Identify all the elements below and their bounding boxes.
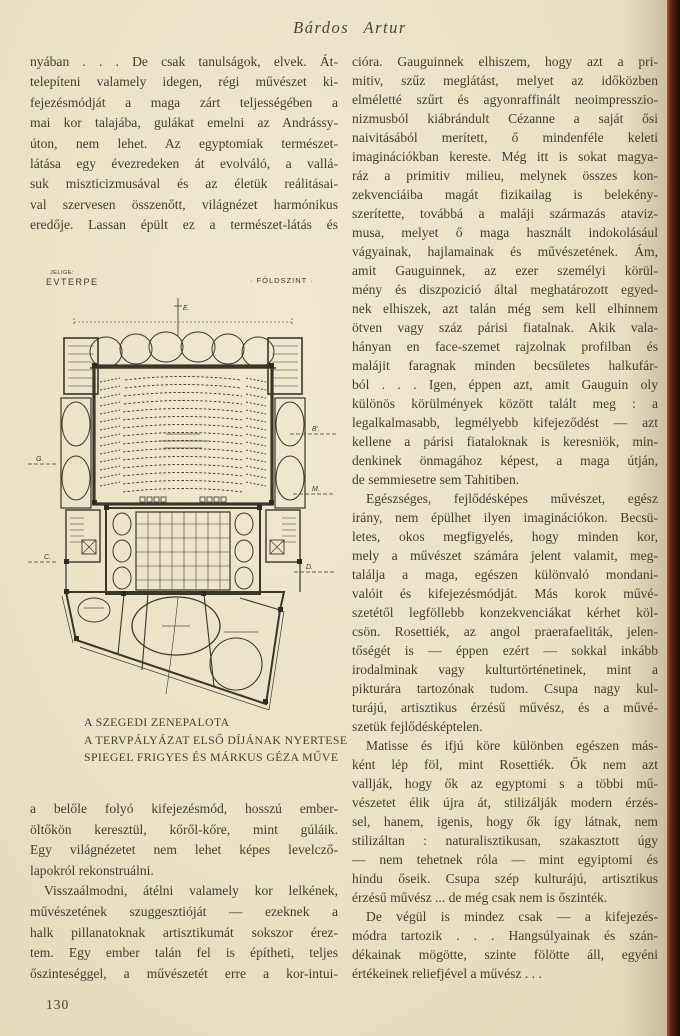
section-mark-c: C. [44,554,51,561]
text-line: ként lép föl, mint Rosettiék. Ők nem azt [352,755,658,774]
text-line: látása egy évezredeken át evolváló, a va… [30,154,338,174]
text-line: pikturára tartozónak tudom. Csupa nagy k… [352,679,658,698]
text-line: lapokról rekonstruálni. [30,861,338,882]
text-line: vészetet élik újra át, stilizálják moder… [352,793,658,812]
text-line: letes, okos megfigyelés, hogy minden kor… [352,527,658,546]
text-line: Matisse és ifjú köre különben egészen má… [352,736,658,755]
floor-label: · FÖLDSZINT · [250,276,314,285]
text-line: nizmusból kiábrándult Cézanne a saját ős… [352,109,658,128]
text-line: mitiv, szűz meglátást, melyet az időközb… [352,71,658,90]
text-line: ból . . . Igen, éppen azt, amit Gauguin … [352,375,658,394]
text-line: mely a művészet számára jelent valamit, … [352,546,658,565]
text-line: mai kor talajába, gulákat emelni az Andr… [30,113,338,133]
text-line: sel, hanem, igenis, hogy ők így látnak, … [352,812,658,831]
text-line: ráz a primitiv milieu, melynek összes ko… [352,166,658,185]
jelige-label: JELIGE: [50,270,74,276]
text-line: irodalminak vagy kulturtörténetinek, min… [352,660,658,679]
text-line: hindu őseik. Csupa szép kulturájú, artis… [352,869,658,888]
text-line: De végül is mindez csak — a kifejezés- [352,907,658,926]
text-line: módra tartozik . . . Hangsúlyainak és sz… [352,926,658,945]
section-mark-g: G. [36,456,43,463]
floor-plan-svg: JELIGE: EVTERPE · FÖLDSZINT · [28,262,338,712]
text-line: vallják, hogy ők az egyptomi s a többi m… [352,774,658,793]
text-line: csön. Rosettiék, az angol praerafaeliták… [352,622,658,641]
text-line: hányan en face-szemet rajzolnak profilba… [352,337,658,356]
text-line: különös körülmények között talált meg : … [352,394,658,413]
figure-caption: A SZEGEDI ZENEPALOTA A TERVPÁLYÁZAT ELSŐ… [84,714,354,767]
section-mark-m: M. [312,486,320,493]
text-line: eredője. Lassan épült ez a természet-lát… [30,215,338,235]
text-line: tőségét is — éppen ezért — sokkal inkább [352,641,658,660]
text-line: musa, melyet ő maga használt indokolásáu… [352,223,658,242]
section-mark-e: E. [183,305,190,312]
text-line: telepíteni valamely idegen, régi művésze… [30,72,338,92]
text-line: Egy világnézetet nem lehet képes levelcz… [30,840,338,861]
text-line: szetétől legföllebb konzekvenciákat kérh… [352,603,658,622]
text-line: valóit és kifejezésmódját. Más korok műv… [352,584,658,603]
text-line: úton, nem lehet. Az egyptomiak természet… [30,134,338,154]
text-line: szetük fejlődésképtelen. [352,717,658,736]
text-line: érzésű művész ... de még csak nem is ősz… [352,888,658,907]
text-line: vágyainak, hajlamainak és művészetének. … [352,242,658,261]
text-line: öltőkön keresztül, kőről-kőre, mint gúlá… [30,820,338,841]
text-line: mény és diszpozició által meghatározott … [352,280,658,299]
figure-caption-line: SPIEGEL FRIGYES ÉS MÁRKUS GÉZA MŰVE [84,749,354,767]
figure-caption-line: A TERVPÁLYÁZAT ELSŐ DÍJÁNAK NYERTESE [84,732,354,750]
text-line: cióra. Gauguinnek elhiszem, hogy azt a p… [352,52,658,71]
section-marks: E. B'. M. G. C. D. [36,305,320,571]
text-line: halk pillanatoknak artisztikumát sokszor… [30,923,338,944]
text-line: amit Gauguinnek, az ezer személyi körül- [352,261,658,280]
text-line: stilizáltan : naturalisztikusan, szakasz… [352,831,658,850]
text-line: elméletté szűrt és agyonraffinált neoimp… [352,90,658,109]
text-line: val szervesen összenőtt, világnézet harm… [30,195,338,215]
text-line: nyában . . . De csak tanulságok, elvek. … [30,52,338,72]
text-line: malájit faragnak minden becsületes halku… [352,356,658,375]
text-line: — nem tehetnek róla — mint egyiptomi és [352,850,658,869]
text-line: ötven vagy száz párisi fiatalnak. Akik v… [352,318,658,337]
text-line: nek elhiszek, azt talán még sem kell elh… [352,299,658,318]
text-line: zekvenciáiba magát fizikailag is belekén… [352,185,658,204]
text-line: őszinteséggel, a művészetét erre a kor-i… [30,964,338,985]
text-line: irány, nem épülhet ilyen imaginációkon. … [352,508,658,527]
seating-rows-left [100,378,120,486]
text-line: Visszaálmodni, átélni valamely kor lelké… [30,881,338,902]
text-line: Egészséges, fejlődésképes művészet, egés… [352,489,658,508]
text-line: értékeinek reliefjével a művész . . . [352,964,658,983]
text-line: a belőle folyó kifejezésmód, hosszú embe… [30,799,338,820]
text-line: művészetének szuggesztióját — ezeknek a [30,902,338,923]
text-line: szerítette, továbbá a maláji származás a… [352,204,658,223]
page-number: 130 [46,997,69,1013]
page-edge-strip [667,0,680,1036]
right-column-text: cióra. Gauguinnek elhiszem, hogy azt a p… [352,52,658,983]
section-mark-b: B'. [312,426,320,433]
floor-plan-figure: JELIGE: EVTERPE · FÖLDSZINT · [28,262,338,712]
seating-rows-right [246,378,266,486]
left-column-bottom-text: a belőle folyó kifejezésmód, hosszú embe… [30,799,338,984]
left-column-top-text: nyában . . . De csak tanulságok, elvek. … [30,52,338,236]
text-line: legalkalmasabb, legmélyebb kifejeződést … [352,413,658,432]
text-line: de semmiesetre sem Tahitiben. [352,470,658,489]
text-line: denkinek önmagához képest, a maga útján, [352,451,658,470]
text-line: kellene a párisi fiataloknak is keresniö… [352,432,658,451]
figure-caption-line: A SZEGEDI ZENEPALOTA [84,714,354,732]
text-line: suk miszticizmusával és az életük reálit… [30,174,338,194]
text-line: turájú, artisztikus érzésű művész, és a … [352,698,658,717]
text-line: naivitásából merített, ő mindenféle kele… [352,128,658,147]
section-mark-d: D. [306,564,313,571]
text-line: fejezésmódját a maga zárt teljességében … [30,93,338,113]
text-line: dékainak mögötte, szinte fölötte áll, eg… [352,945,658,964]
text-line: imaginációkban kereste. Még itt is sokat… [352,147,658,166]
page-title: Bárdos Artur [10,18,680,38]
motto-label: EVTERPE [46,277,99,287]
plan-drawing [28,298,336,710]
text-line: találja a maga, egészen különvaló mondan… [352,565,658,584]
text-line: tem. Egy ember talán fel is építheti, te… [30,943,338,964]
